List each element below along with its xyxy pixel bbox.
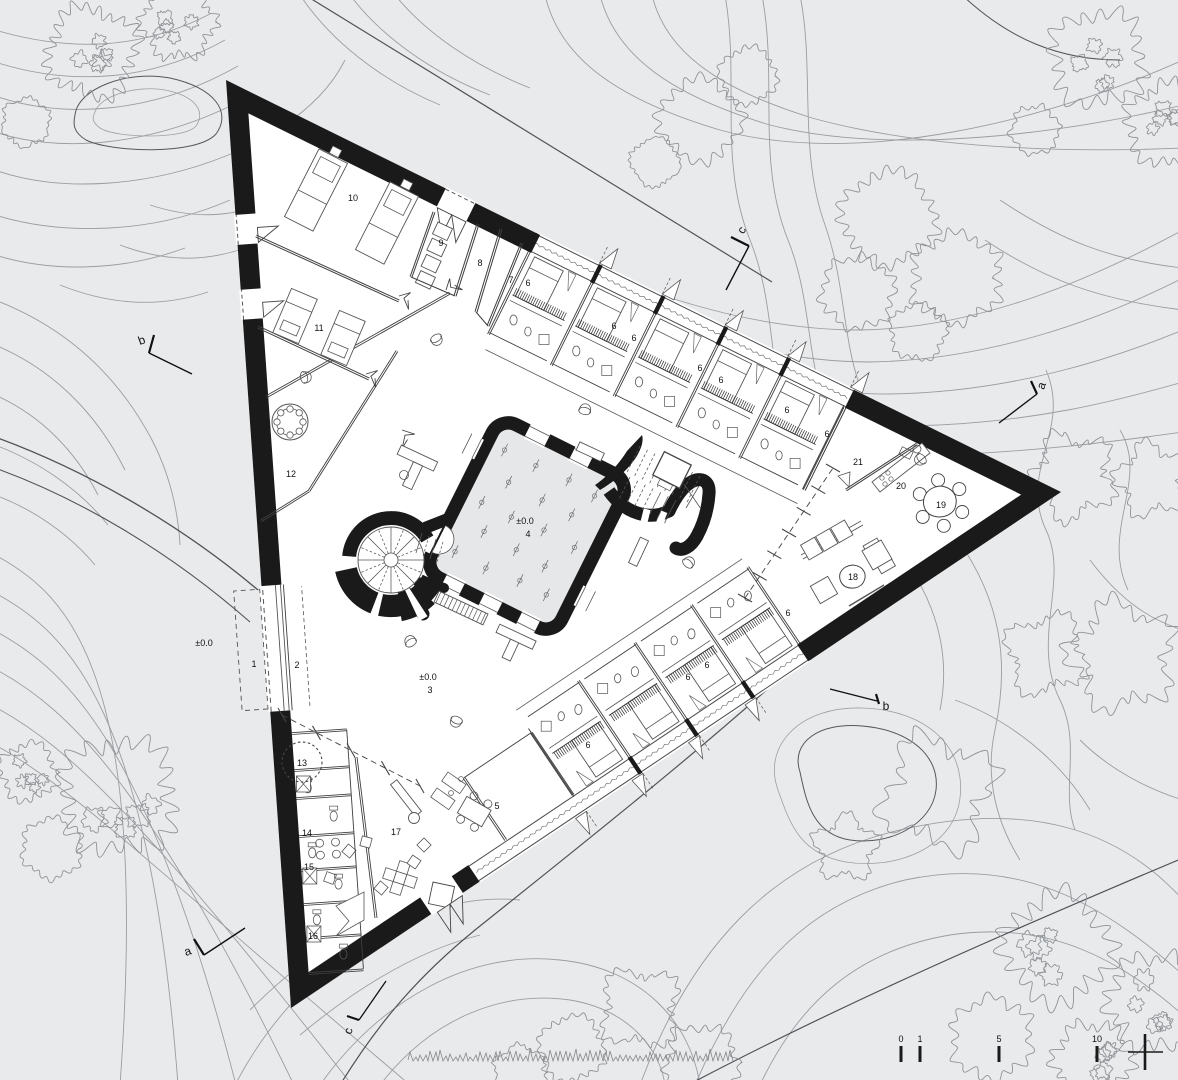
svg-text:5: 5 — [494, 801, 499, 811]
svg-text:1: 1 — [917, 1034, 922, 1044]
svg-text:b: b — [883, 699, 890, 713]
svg-text:2: 2 — [294, 660, 299, 670]
svg-text:5: 5 — [996, 1034, 1001, 1044]
svg-text:7: 7 — [508, 275, 513, 285]
svg-text:6: 6 — [784, 405, 789, 415]
svg-text:±0.0: ±0.0 — [419, 672, 436, 682]
svg-text:6: 6 — [525, 278, 530, 288]
svg-text:8: 8 — [477, 258, 482, 268]
svg-text:9: 9 — [438, 238, 443, 248]
svg-text:6: 6 — [718, 375, 723, 385]
svg-text:10: 10 — [348, 193, 358, 203]
svg-text:18: 18 — [848, 572, 858, 582]
svg-text:1: 1 — [251, 659, 256, 669]
svg-text:16: 16 — [308, 931, 318, 941]
svg-text:21: 21 — [853, 457, 863, 467]
svg-text:6: 6 — [611, 321, 616, 331]
svg-text:11: 11 — [314, 323, 323, 333]
svg-text:6: 6 — [685, 672, 690, 682]
svg-text:10: 10 — [1092, 1034, 1102, 1044]
svg-text:6: 6 — [631, 333, 636, 343]
svg-text:14: 14 — [302, 828, 312, 838]
svg-text:±0.0: ±0.0 — [516, 516, 533, 526]
svg-text:3: 3 — [427, 685, 432, 695]
svg-text:4: 4 — [525, 529, 530, 539]
svg-text:6: 6 — [585, 740, 590, 750]
svg-text:17: 17 — [391, 827, 401, 837]
svg-text:±0.0: ±0.0 — [195, 638, 212, 648]
svg-text:19: 19 — [936, 500, 946, 510]
svg-text:20: 20 — [896, 481, 906, 491]
svg-text:6: 6 — [704, 660, 709, 670]
svg-text:15: 15 — [304, 862, 314, 872]
svg-text:12: 12 — [286, 469, 296, 479]
svg-text:0: 0 — [898, 1034, 903, 1044]
svg-text:6: 6 — [697, 363, 702, 373]
svg-text:6: 6 — [785, 608, 790, 618]
svg-text:13: 13 — [297, 758, 307, 768]
